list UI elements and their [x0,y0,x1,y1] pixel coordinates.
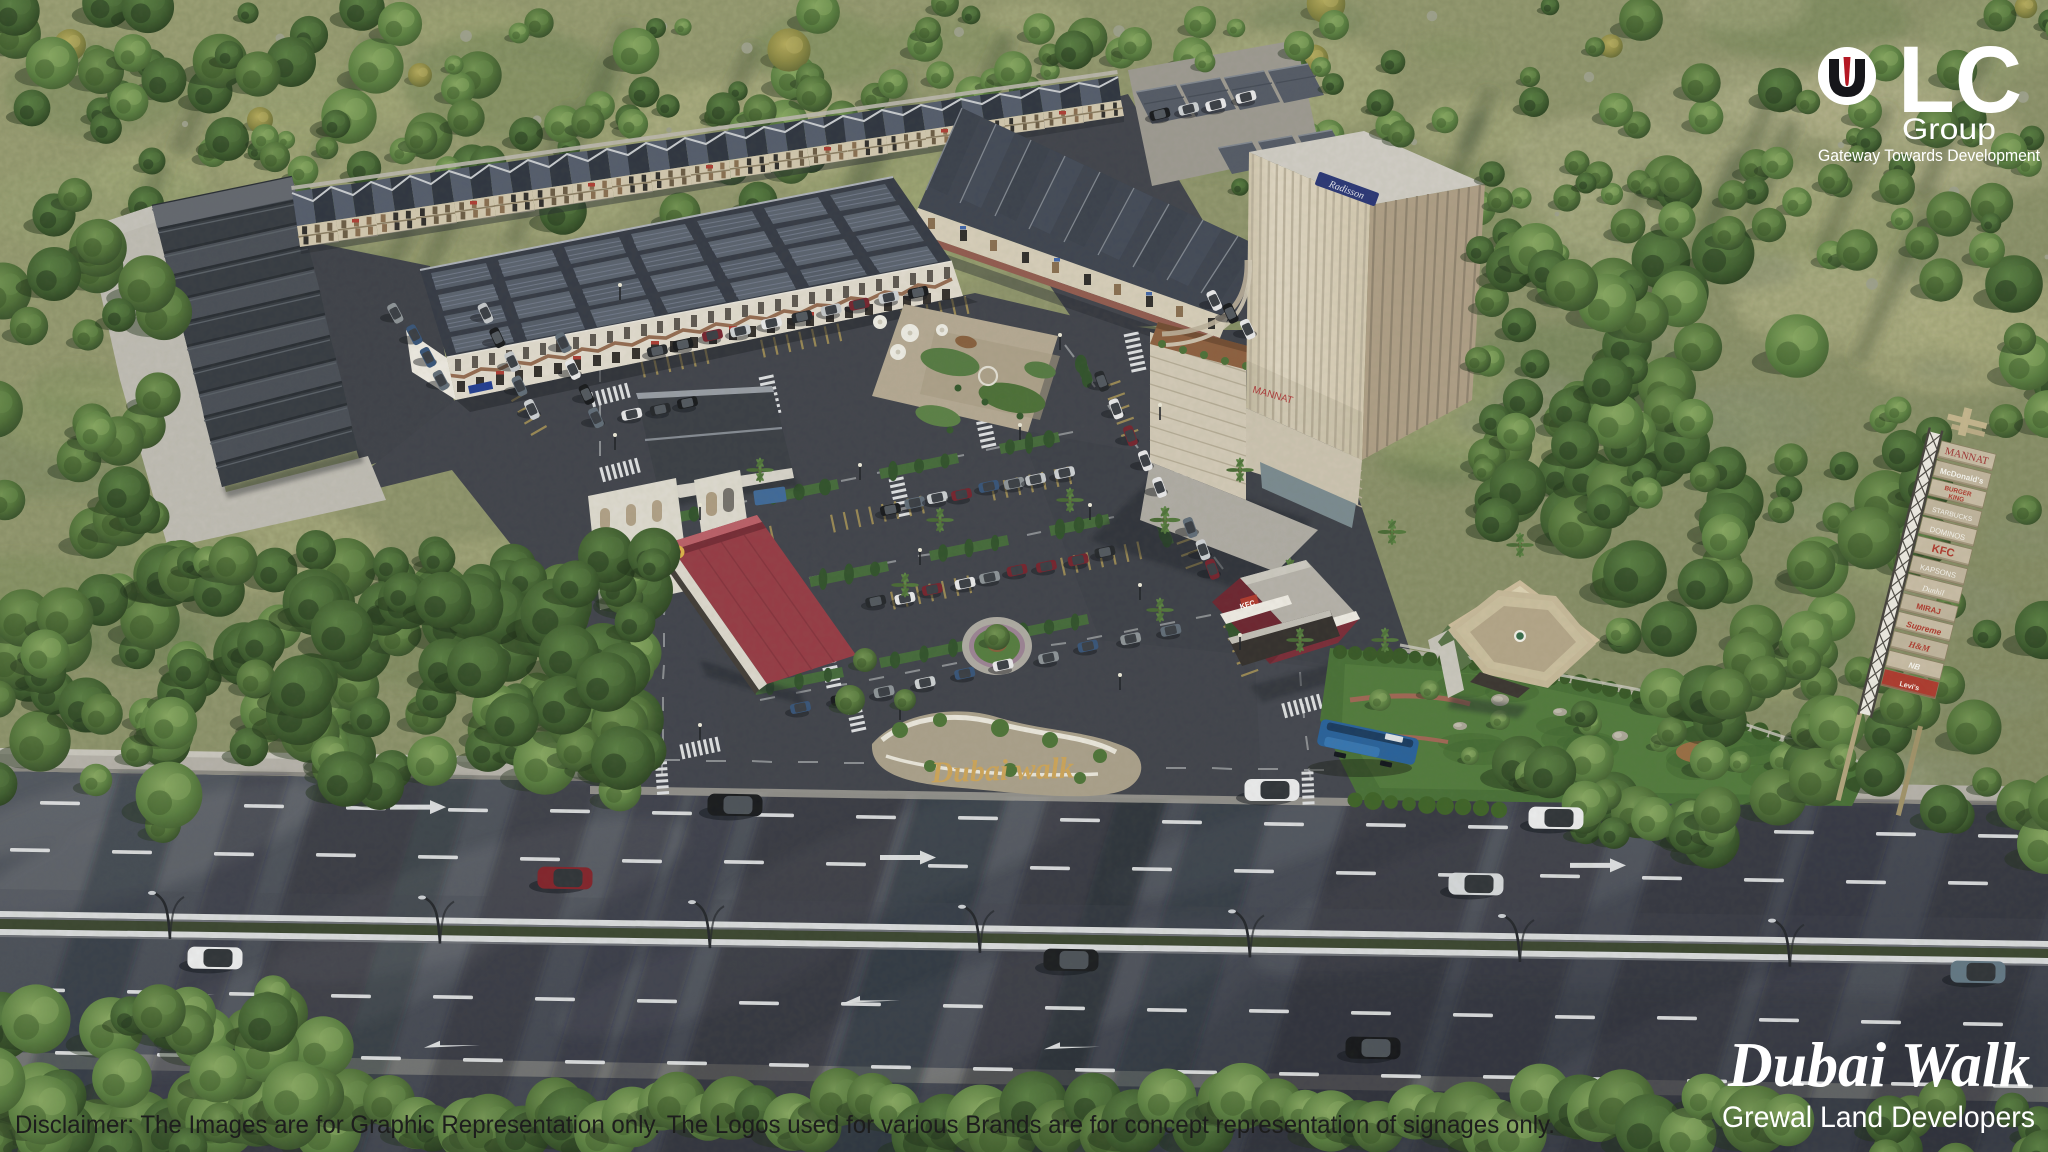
svg-text:Grewal Land Developers: Grewal Land Developers [1722,1101,2035,1134]
svg-text:Group: Group [1902,113,1996,146]
svg-text:Gateway Towards Development: Gateway Towards Development [1818,147,2040,165]
svg-text:Dubai Walk: Dubai Walk [1727,1029,2030,1100]
svg-text:Disclaimer: The Images are for: Disclaimer: The Images are for Graphic R… [15,1111,1555,1139]
